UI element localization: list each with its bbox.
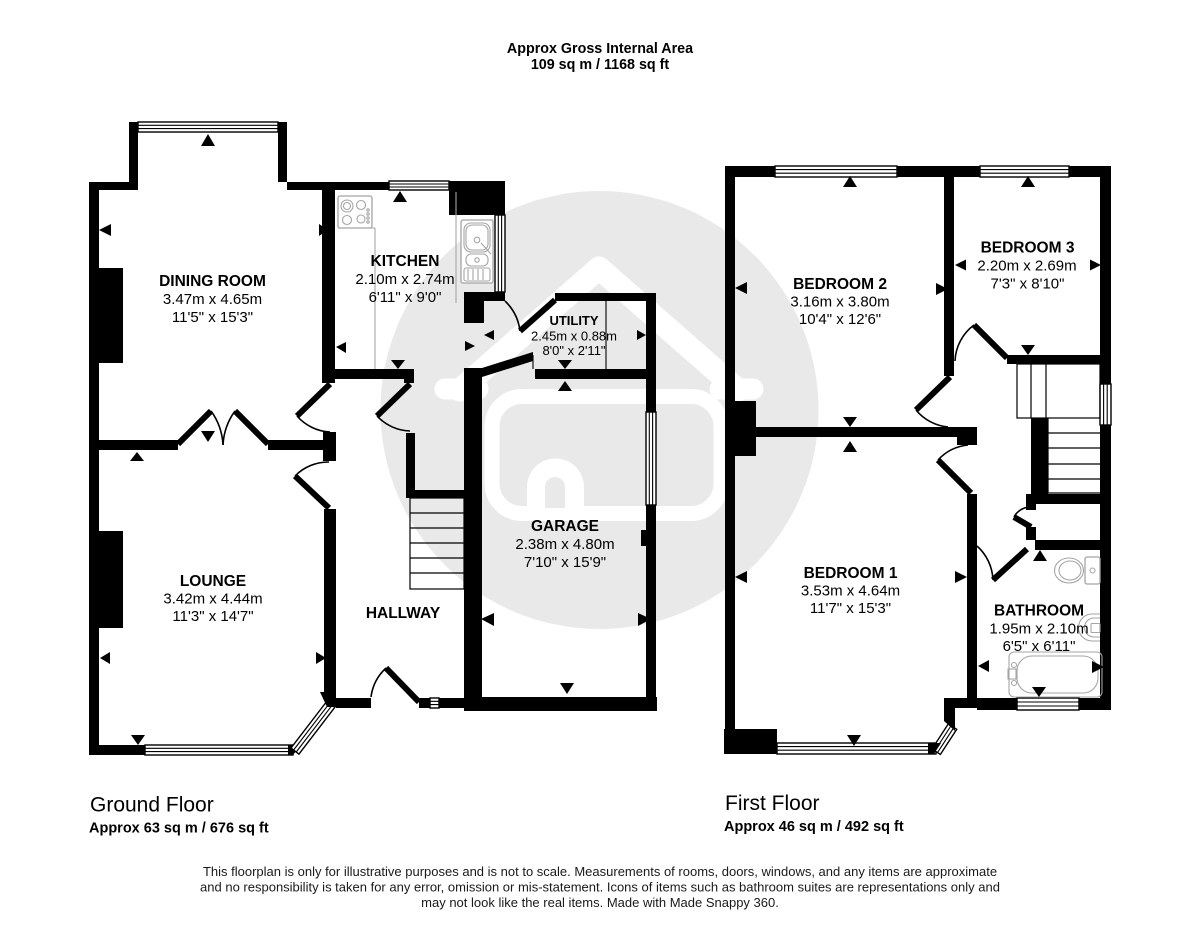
svg-text:and no responsibility is taken: and no responsibility is taken for any e… [200, 880, 1000, 895]
svg-text:11'3" x 14'7": 11'3" x 14'7" [172, 608, 253, 625]
svg-text:First Floor: First Floor [725, 792, 820, 815]
svg-text:2.45m x 0.88m: 2.45m x 0.88m [531, 329, 617, 344]
svg-text:7'10" x 15'9": 7'10" x 15'9" [524, 554, 606, 571]
svg-text:2.38m x 4.80m: 2.38m x 4.80m [515, 536, 614, 553]
svg-text:6'5" x 6'11": 6'5" x 6'11" [1003, 638, 1076, 655]
svg-text:6'11" x 9'0": 6'11" x 9'0" [369, 289, 442, 306]
svg-text:This floorplan is only for ill: This floorplan is only for illustrative … [203, 864, 997, 879]
svg-text:Approx 63 sq m / 676 sq ft: Approx 63 sq m / 676 sq ft [89, 821, 269, 837]
svg-text:LOUNGE: LOUNGE [180, 573, 246, 590]
svg-text:10'4" x 12'6": 10'4" x 12'6" [799, 311, 881, 328]
svg-text:8'0" x 2'11": 8'0" x 2'11" [542, 343, 605, 358]
svg-text:Approx Gross Internal Area: Approx Gross Internal Area [507, 41, 694, 57]
svg-text:BEDROOM 3: BEDROOM 3 [981, 240, 1075, 257]
svg-text:KITCHEN: KITCHEN [371, 253, 440, 270]
svg-text:GARAGE: GARAGE [531, 518, 599, 535]
svg-text:3.47m x 4.65m: 3.47m x 4.65m [163, 291, 262, 308]
svg-text:Ground Floor: Ground Floor [90, 794, 214, 817]
svg-text:7'3" x 8'10": 7'3" x 8'10" [991, 276, 1065, 293]
svg-text:BEDROOM 2: BEDROOM 2 [793, 276, 887, 293]
svg-text:Approx 46 sq m / 492 sq ft: Approx 46 sq m / 492 sq ft [724, 819, 904, 835]
svg-text:HALLWAY: HALLWAY [366, 605, 441, 622]
svg-text:1.95m x 2.10m: 1.95m x 2.10m [989, 621, 1088, 638]
svg-text:may not look like the real ite: may not look like the real items. Made w… [421, 895, 779, 910]
svg-text:2.10m x 2.74m: 2.10m x 2.74m [355, 271, 454, 288]
svg-text:109 sq m / 1168 sq ft: 109 sq m / 1168 sq ft [531, 57, 670, 73]
svg-text:3.53m x 4.64m: 3.53m x 4.64m [801, 583, 900, 600]
svg-text:3.42m x 4.44m: 3.42m x 4.44m [163, 591, 262, 608]
svg-text:11'5" x 15'3": 11'5" x 15'3" [172, 309, 253, 326]
svg-text:11'7" x 15'3": 11'7" x 15'3" [810, 600, 891, 617]
svg-text:2.20m x 2.69m: 2.20m x 2.69m [977, 258, 1076, 275]
svg-text:3.16m x 3.80m: 3.16m x 3.80m [790, 294, 889, 311]
svg-text:BATHROOM: BATHROOM [994, 603, 1084, 620]
svg-text:DINING ROOM: DINING ROOM [159, 273, 266, 290]
svg-text:UTILITY: UTILITY [549, 313, 598, 328]
svg-text:BEDROOM 1: BEDROOM 1 [804, 565, 898, 582]
